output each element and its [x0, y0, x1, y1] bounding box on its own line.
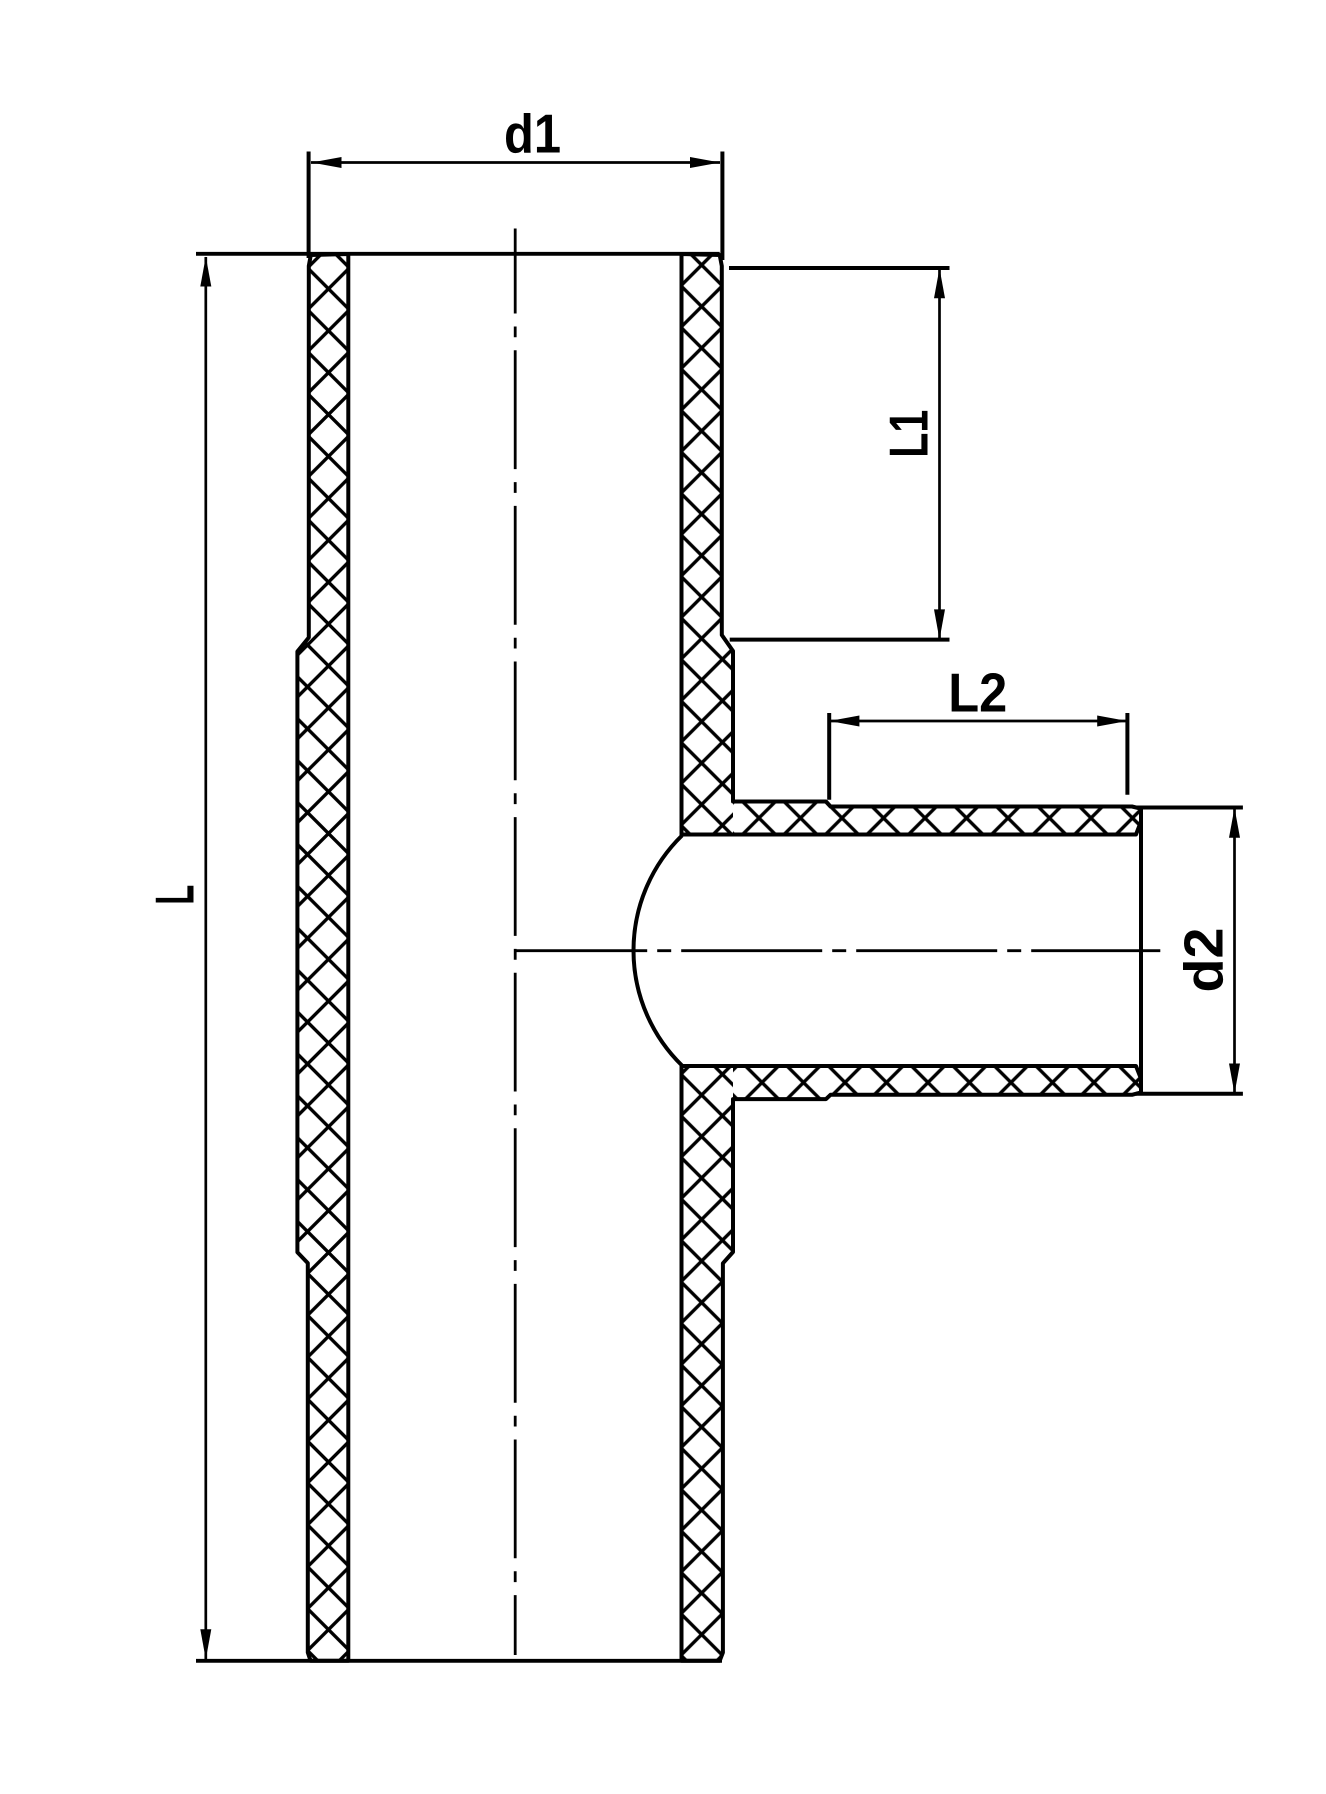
- svg-text:L: L: [144, 885, 206, 905]
- svg-text:L2: L2: [948, 661, 1007, 723]
- svg-text:L1: L1: [878, 410, 940, 458]
- svg-text:d1: d1: [504, 103, 561, 165]
- svg-text:d2: d2: [1173, 928, 1235, 993]
